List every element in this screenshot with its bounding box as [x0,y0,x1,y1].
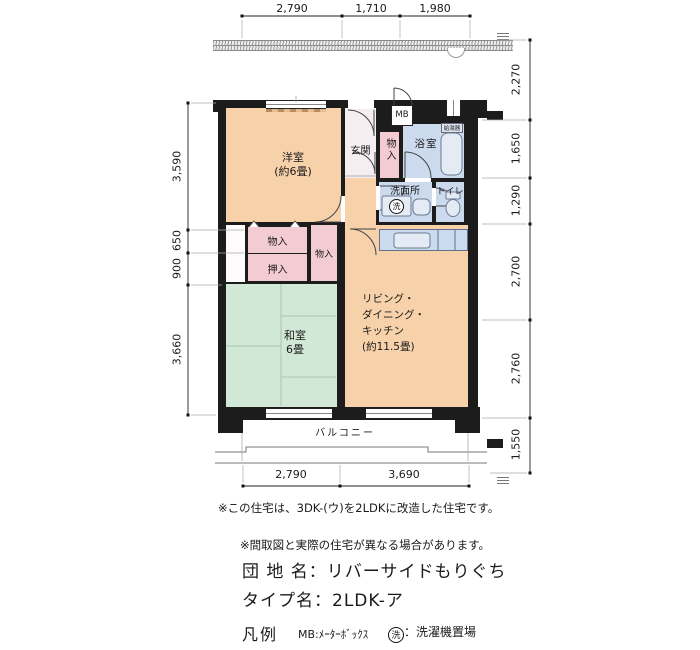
label-washroom: 洗面所 [378,182,432,197]
legend-wash-text: ：洗濯機置場 [404,625,476,639]
dim-right-5: 2,760 [510,339,523,399]
pier-bottom-right [455,407,480,433]
stub-right-top [487,111,503,120]
note-remodel: ※この住宅は、3DK-(ウ)を2LDKに改造した住宅です。 [218,500,499,516]
dim-top-1: 2,790 [262,2,322,15]
legend-wash-symbol: 洗 [388,627,404,643]
window-western-top [266,100,326,109]
corridor-column-notch [447,48,465,58]
stub-right-bottom [487,439,503,448]
dim-top-2: 1,710 [341,2,401,15]
type-name: タイプ名：2LDK-ア [242,586,404,611]
legend-mb: MB:ﾒｰﾀｰﾎﾞｯｸｽ [298,626,368,642]
label-meter-box: MB [391,110,413,120]
legend-title: 凡例 [242,621,278,645]
washing-machine-symbol: 洗 [389,199,404,214]
label-room-western: 洋室 (約6畳) [251,151,335,179]
label-water-heater: 給湯器 [441,124,463,132]
label-balcony: バルコニー [305,424,385,439]
window-ldk-balcony [366,408,432,419]
ldk-line2: ダイニング・ [362,307,425,323]
window-top-right [446,100,461,116]
note-difference: ※間取図と実際の住宅が異なる場合があります。 [240,537,490,553]
door-gap-western [341,196,345,222]
dim-top-3: 1,980 [405,2,465,15]
legend-wash: 洗：洗濯機置場 [388,623,476,643]
label-room-japanese: 和室 6畳 [266,329,324,357]
dim-bottom-2: 3,690 [374,468,434,481]
label-toilet: トイレ [435,184,465,197]
label-closet-b: 物入 [311,247,337,260]
label-bath: 浴室 [406,136,446,151]
kitchen-counter [379,229,468,251]
window-japanese-balcony [266,408,332,419]
label-oshiire: 押入 [248,261,307,276]
ldk-line3: キッチン [362,323,425,339]
japanese-name: 和室 [266,329,324,343]
wall-break-mark-bottom [497,477,509,484]
western-size: (約6畳) [251,165,335,179]
western-name: 洋室 [251,151,335,165]
dim-bottom-1: 2,790 [261,468,321,481]
dim-right-1: 2,270 [510,50,523,110]
door-gap-entrance [348,100,374,109]
hallway [345,178,376,229]
wall-break-mark-top [497,33,509,40]
corridor-band-inner [213,45,513,51]
estate-name: 団 地 名：リバーサイドもりぐち [242,557,506,582]
ldk-line4: (約11.5畳) [362,339,425,355]
japanese-size: 6畳 [266,343,324,357]
inner-passage [226,225,245,282]
dim-left-3: 900 [171,239,184,299]
dim-left-1: 3,590 [171,137,184,197]
pier-bottom-left [218,407,243,433]
dim-right-2: 1,650 [510,119,523,179]
label-closet-hall: 物入 [382,138,397,162]
dim-right-3: 1,290 [510,171,523,231]
floor-plan-sheet: 洋室 (約6畳) 玄関 物入 MB 給湯器 浴室 洗面所 トイレ 洗 物入 押入… [0,0,700,650]
dim-right-4: 2,700 [510,242,523,302]
dim-right-6: 1,550 [510,415,523,475]
dim-left-4: 3,660 [171,320,184,380]
label-closet-a: 物入 [248,233,307,248]
label-entrance: 玄関 [345,142,376,157]
label-room-ldk: リビング・ ダイニング・ キッチン (約11.5畳) [362,291,425,355]
ldk-line1: リビング・ [362,291,425,307]
